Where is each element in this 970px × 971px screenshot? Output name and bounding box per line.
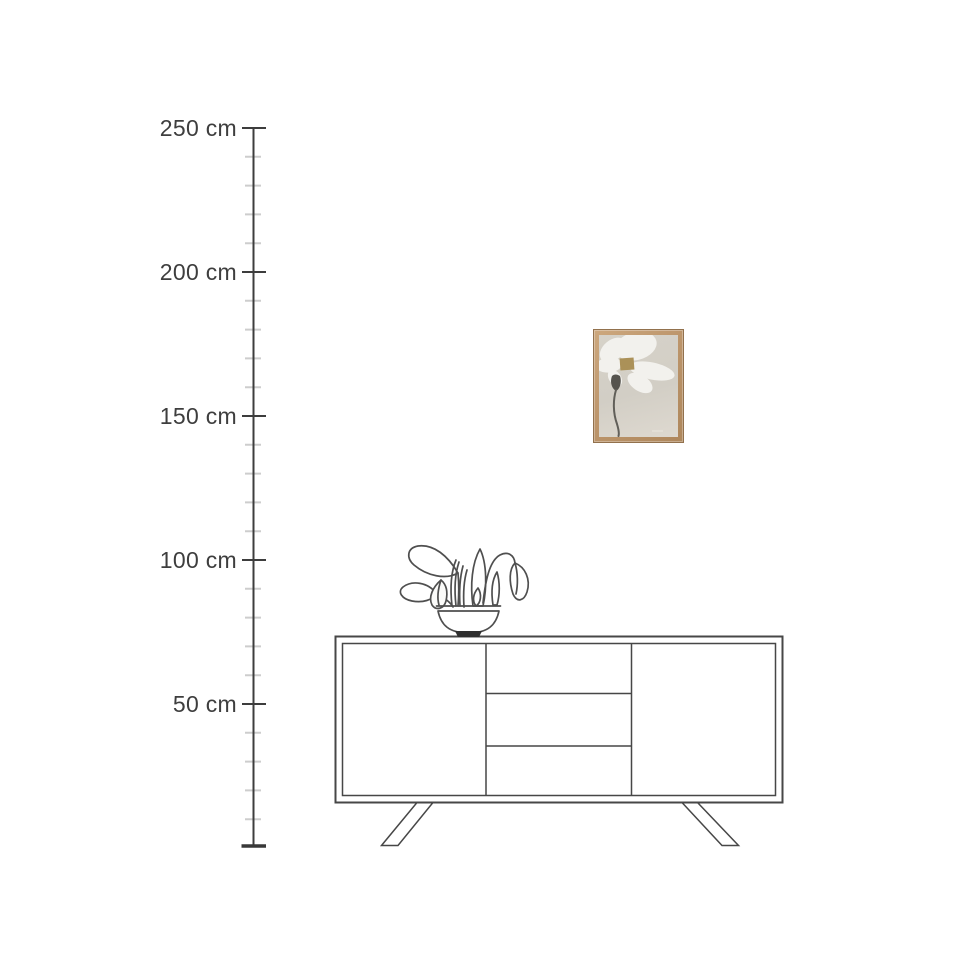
flower-petals	[599, 335, 676, 397]
sideboard-dividers	[486, 644, 632, 796]
plant-leaf-stem	[458, 573, 459, 606]
artist-signature-mark	[652, 430, 663, 432]
sideboard-drawing	[336, 637, 783, 846]
plant-leaf	[492, 572, 499, 605]
scene-drawing	[0, 0, 970, 971]
ruler-label-50cm: 50 cm	[90, 692, 237, 716]
art-canvas	[599, 335, 678, 437]
plant-leaf	[409, 546, 458, 577]
flower-center	[620, 358, 635, 371]
ruler-label-150cm: 150 cm	[90, 404, 237, 428]
sideboard-outer-body	[336, 637, 783, 803]
size-guide-illustration: 250 cm 200 cm 150 cm 100 cm 50 cm	[0, 0, 970, 971]
plant-leaf	[510, 563, 528, 600]
ruler-label-200cm: 200 cm	[90, 260, 237, 284]
flower-stem	[614, 390, 619, 436]
plant-bowl-body	[438, 611, 499, 633]
flower-sepal	[611, 375, 621, 392]
sideboard-left-leg	[382, 803, 434, 846]
ruler-label-250cm: 250 cm	[90, 116, 237, 140]
ruler-label-100cm: 100 cm	[90, 548, 237, 572]
sideboard-drawer-lines	[486, 694, 632, 747]
flower-artwork	[599, 335, 678, 437]
ruler-scale	[242, 128, 267, 846]
sideboard-inner-body	[343, 644, 776, 796]
framed-art-print	[593, 329, 684, 443]
sideboard-right-leg	[682, 803, 739, 846]
plant-drawing	[400, 546, 528, 637]
plant-bowl-base	[455, 631, 482, 637]
